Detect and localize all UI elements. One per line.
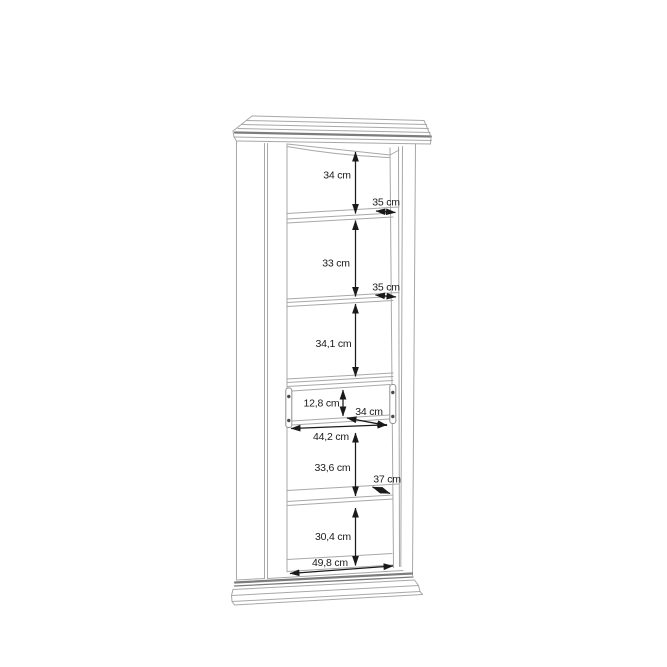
drawer-screw-dot [391,391,394,394]
furniture-dimension-diagram: 34 cm 35 cm 33 cm 35 cm 34,1 cm 12,8 cm … [0,0,667,667]
plinth [232,574,423,606]
dim-arrow-drawer-width [291,425,387,429]
drawer-screw-dot [287,419,290,422]
dim-label-section2-height: 33 cm [322,258,350,270]
dim-label-shelf1-depth: 35 cm [372,197,400,209]
dim-label-shelf2-depth: 35 cm [372,282,400,294]
drawer-screw-dot [391,415,394,418]
crown-molding [233,116,432,144]
dim-label-section3-height: 34,1 cm [316,338,352,350]
drawer-screw-dot [287,395,290,398]
dim-label-bottom-width: 49,8 cm [312,557,348,569]
diagram-canvas: 34 cm 35 cm 33 cm 35 cm 34,1 cm 12,8 cm … [0,0,667,667]
dim-label-section1-height: 34 cm [323,170,351,182]
dimension-labels: 34 cm 35 cm 33 cm 35 cm 34,1 cm 12,8 cm … [304,170,402,570]
dim-label-section5-height: 30,4 cm [315,531,351,543]
dim-label-section4-height: 33,6 cm [315,462,351,474]
dim-label-drawer-inner-height: 12,8 cm [304,398,340,410]
dim-label-shelf4-depth: 37 cm [373,474,401,486]
dim-label-drawer-depth: 34 cm [355,406,383,418]
interior-top-panel [287,144,399,158]
dim-arrow-shelf1-depth [376,211,396,213]
dim-label-drawer-width: 44,2 cm [313,431,349,443]
dim-arrow-shelf4-depth [373,487,391,494]
